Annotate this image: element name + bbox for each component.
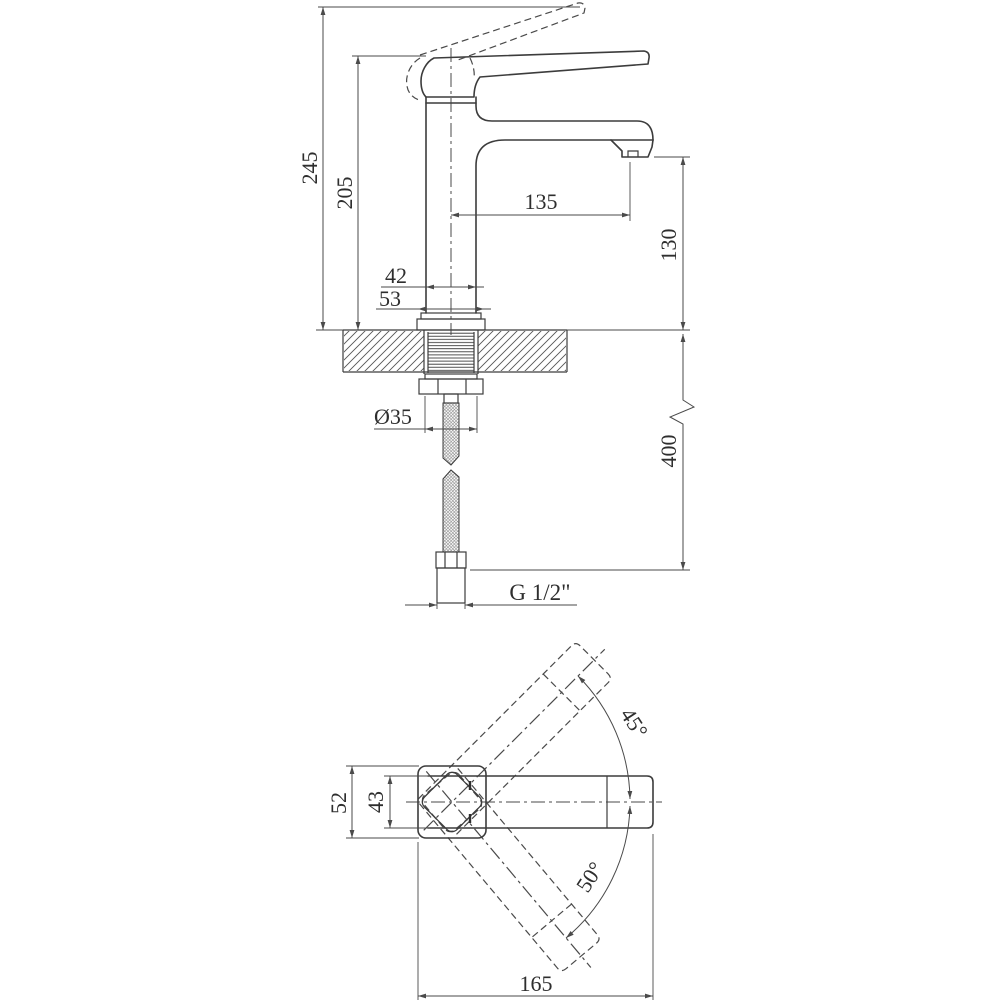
handle-position-up-45 <box>405 631 623 849</box>
top-view: 52 43 45° 50° 165 <box>326 631 662 1000</box>
dimension-spout-reach: 135 <box>451 189 630 215</box>
side-view: 245 205 135 130 42 53 <box>297 3 694 609</box>
aerator-insert <box>628 151 638 157</box>
dimension-spout-outlet-height: 130 <box>656 157 683 330</box>
dim-label-45deg: 45° <box>615 703 653 742</box>
dimension-mounting-diameter: Ø35 <box>374 404 477 429</box>
dim-label-135: 135 <box>525 189 558 214</box>
dimension-overall-height: 245 <box>297 7 323 330</box>
dim-label-50deg: 50° <box>571 857 609 896</box>
dim-label-245: 245 <box>297 152 322 185</box>
supply-hose <box>436 394 466 603</box>
dim-label-thread: G 1/2" <box>509 580 570 605</box>
side-extension-lines <box>316 7 690 609</box>
dim-label-42: 42 <box>385 263 407 288</box>
hose-fitting-nut <box>436 552 466 568</box>
handle-swing-arcs: 45° 50° <box>566 676 653 938</box>
dimension-base-width: 53 <box>376 286 491 311</box>
aerator-outline <box>611 140 653 157</box>
dimension-body-width: 42 <box>381 263 484 288</box>
hose-connector <box>437 568 465 603</box>
dim-label-400: 400 <box>656 435 681 468</box>
handle-lever-outline <box>421 51 649 97</box>
dimension-handle-height: 205 <box>332 56 358 330</box>
dimension-handle-width: 43 <box>363 776 390 828</box>
dim-label-53: 53 <box>379 286 401 311</box>
dim-label-205: 205 <box>332 177 357 210</box>
dim-label-d35: Ø35 <box>374 404 412 429</box>
dimension-overall-length: 165 <box>418 971 653 996</box>
technical-drawing-page: 245 205 135 130 42 53 <box>0 0 1000 1000</box>
dim-label-52: 52 <box>326 792 351 814</box>
threaded-shank <box>428 332 474 373</box>
faucet-dimension-drawing: 245 205 135 130 42 53 <box>0 0 1000 1000</box>
dim-label-43: 43 <box>363 791 388 813</box>
dimension-hose-length: 400 <box>656 334 694 570</box>
dim-label-165: 165 <box>520 971 553 996</box>
dimension-base-depth: 52 <box>326 766 352 838</box>
dim-label-130: 130 <box>656 229 681 262</box>
handle-raised-dashed <box>407 3 585 100</box>
dimension-connection-thread: G 1/2" <box>405 580 577 605</box>
fixing-nut <box>419 374 483 394</box>
countertop-section <box>343 330 567 374</box>
